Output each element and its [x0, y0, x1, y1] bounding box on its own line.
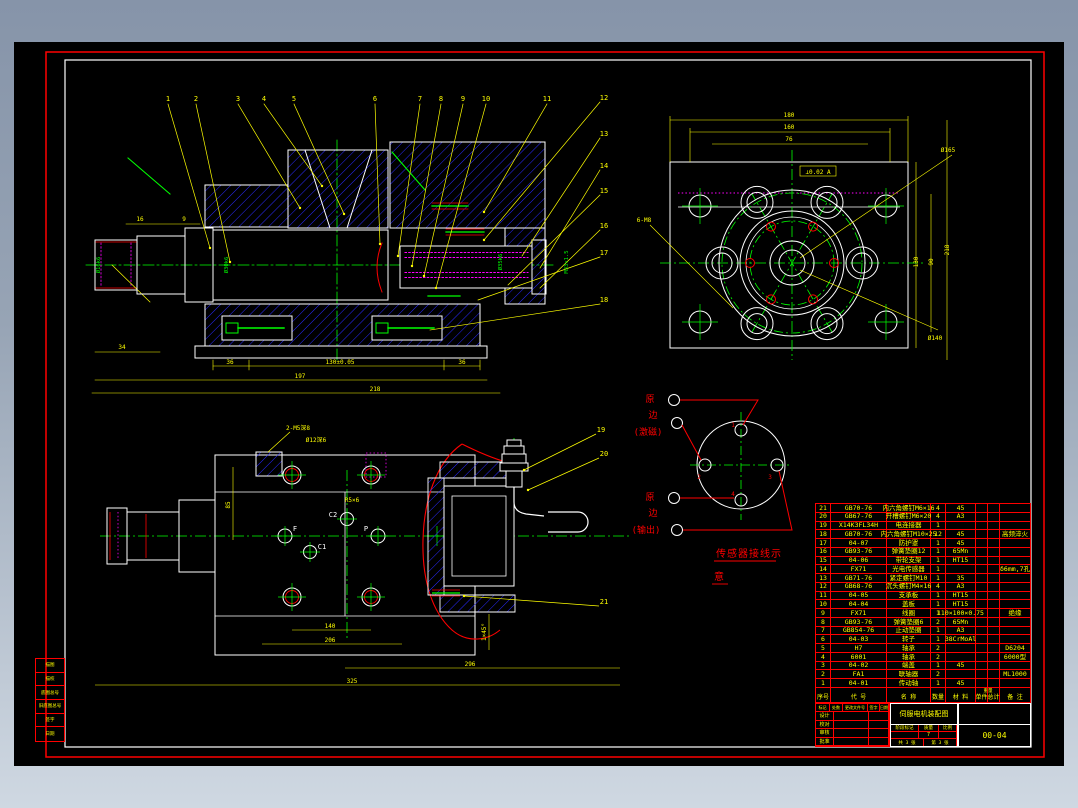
part-callouts-viewC: 19 20 21: [597, 426, 608, 606]
bom-cell: 8: [816, 618, 831, 626]
svg-text:17: 17: [600, 249, 608, 257]
svg-text:边: 边: [648, 508, 657, 519]
mass-label: 质量: [919, 725, 939, 731]
bom-cell: 2: [931, 653, 946, 661]
bom-cell: 内六角螺钉M10×25: [887, 530, 931, 538]
svg-text:Ø30k6: Ø30k6: [223, 257, 230, 274]
bom-cell: 45: [946, 662, 976, 670]
bom-cell: 2: [931, 618, 946, 626]
bom-cell: [988, 662, 1000, 670]
bom-cell: 1: [931, 557, 946, 565]
flange-end-view: 180 160 76 130 90 218 Ø165 Ø140 6-M8 ⊥0.…: [637, 112, 956, 360]
bom-cell: 04-06: [831, 557, 887, 565]
bom-cell: 止动垫圈: [887, 627, 931, 635]
bom-cell: [976, 670, 988, 678]
bom-cell: 14: [816, 565, 831, 573]
bom-cell: 45: [946, 530, 976, 538]
bom-header-cell: 序号: [816, 688, 831, 702]
svg-text:(激磁): (激磁): [634, 426, 663, 438]
bom-cell: [976, 522, 988, 530]
sign-label: 设计: [816, 712, 834, 720]
bom-cell: 1: [931, 539, 946, 547]
svg-text:3: 3: [768, 474, 772, 481]
sheet-number: 第 3 张: [924, 739, 957, 746]
bom-cell: 45: [946, 539, 976, 547]
bom-row: 2FA1联轴器2ML1000: [816, 670, 1030, 679]
bom-cell: 高频淬火: [1000, 530, 1030, 538]
strip-label: 日期: [36, 727, 64, 741]
bom-cell: [976, 653, 988, 661]
svg-text:21: 21: [600, 598, 608, 606]
bom-cell: [988, 627, 1000, 635]
bom-row: 1004-04盖板1HT15: [816, 600, 1030, 609]
bom-cell: 轴承: [887, 644, 931, 652]
svg-text:130±0.05: 130±0.05: [326, 359, 355, 366]
wiring-caption: 传感器接线示 意: [712, 547, 782, 584]
bom-cell: 1: [931, 679, 946, 687]
svg-text:8: 8: [439, 95, 443, 103]
bom-cell: 1: [931, 600, 946, 608]
svg-text:Ø35k6: Ø35k6: [497, 254, 504, 271]
bom-cell: 15: [816, 557, 831, 565]
bom-cell: 2: [931, 644, 946, 652]
bom-header-row: 序号 代 号 名 称 数量 材 料 单件 总计 备 注: [816, 688, 1030, 702]
bom-cell: 线圈: [887, 609, 931, 617]
bom-cell: [988, 557, 1000, 565]
svg-text:6-M8: 6-M8: [637, 217, 652, 224]
plan-view: 19 20 21 F C1 C2 P 2-M5深8: [95, 424, 632, 685]
wiring-terminals: [669, 395, 683, 536]
bom-cell: [976, 557, 988, 565]
strip-label: 描校: [36, 673, 64, 687]
sheet-total: 共 3 张: [891, 739, 924, 746]
strip-label: 底图总号: [36, 686, 64, 700]
bom-cell: [1000, 679, 1030, 687]
bom-cell: [946, 522, 976, 530]
bom-cell: [988, 653, 1000, 661]
bom-cell: 1: [931, 662, 946, 670]
stage-label: 阶段标记: [891, 725, 919, 731]
svg-text:(输出): (输出): [632, 524, 661, 536]
bom-cell: [988, 618, 1000, 626]
front-section-view: 1 2 3 4 5 6 7 8 9 10 11 12 13 14 15 16 1…: [86, 94, 608, 393]
bom-cell: 2: [931, 670, 946, 678]
bom-cell: GB70-76: [831, 504, 887, 512]
strip-label: 描图: [36, 659, 64, 673]
bom-cell: GB70-76: [831, 530, 887, 538]
svg-text:4: 4: [731, 491, 735, 498]
bom-cell: [976, 583, 988, 591]
bom-cell: 开槽螺钉M6×20: [887, 513, 931, 521]
bom-cell: GB93-76: [831, 548, 887, 556]
bom-cell: [988, 600, 1000, 608]
bom-cell: [1000, 574, 1030, 582]
wiring-labels: 原 边 (激磁) 原 边 (输出): [632, 394, 663, 536]
bom-cell: GB67-76: [831, 513, 887, 521]
svg-text:180: 180: [784, 112, 795, 119]
svg-text:10: 10: [482, 95, 490, 103]
bom-cell: FX71: [831, 565, 887, 573]
title-block-right: 00-04: [958, 703, 1031, 747]
bom-cell: [946, 653, 976, 661]
bom-cell: 1: [931, 592, 946, 600]
bom-cell: 1: [816, 679, 831, 687]
bom-row: 9FX71线圈1110×100×0.75绝缘: [816, 609, 1030, 618]
change-label: 更改文件号: [843, 704, 868, 711]
bom-cell: 35: [946, 574, 976, 582]
bom-cell: A3: [946, 583, 976, 591]
bom-cell: A3: [946, 513, 976, 521]
bom-cell: 联轴器: [887, 670, 931, 678]
svg-text:20: 20: [600, 450, 608, 458]
bom-cell: [1000, 618, 1030, 626]
bom-cell: [988, 644, 1000, 652]
svg-text:5: 5: [292, 95, 296, 103]
bom-cell: 轴承: [887, 653, 931, 661]
bom-cell: 6001: [831, 653, 887, 661]
svg-text:9: 9: [461, 95, 465, 103]
bom-cell: 盖板: [887, 600, 931, 608]
svg-text:3: 3: [236, 95, 240, 103]
bom-cell: [1000, 662, 1030, 670]
bom-cell: 4: [931, 504, 946, 512]
bom-cell: 19: [816, 522, 831, 530]
bom-cell: 12: [816, 583, 831, 591]
svg-text:M33×1.5: M33×1.5: [564, 250, 570, 273]
svg-text:Ø16k6: Ø16k6: [95, 257, 102, 274]
sheet-count-row: 共 3 张 第 3 张: [891, 739, 957, 746]
svg-text:15: 15: [600, 187, 608, 195]
bom-cell: 65Mn: [946, 548, 976, 556]
bom-row: 304-02端盖145: [816, 662, 1030, 671]
bom-cell: 04-01: [831, 679, 887, 687]
svg-text:13: 13: [600, 130, 608, 138]
svg-text:76: 76: [785, 136, 793, 143]
bom-cell: [976, 565, 988, 573]
bom-header-cell: 材 料: [946, 688, 976, 702]
bom-cell: [988, 609, 1000, 617]
cad-preview-background: 1 2 3 4 5 6 7 8 9 10 11 12 13 14 15 16 1…: [0, 0, 1078, 808]
bom-cell: [988, 504, 1000, 512]
bom-cell: [976, 592, 988, 600]
bom-cell: [976, 662, 988, 670]
bom-cell: [988, 679, 1000, 687]
bom-cell: [988, 522, 1000, 530]
bom-cell: [976, 600, 988, 608]
svg-text:90: 90: [928, 258, 935, 266]
bom-cell: 16: [816, 548, 831, 556]
svg-text:130: 130: [913, 256, 920, 267]
bom-cell: 电连接器: [887, 522, 931, 530]
bom-cell: GB71-76: [831, 574, 887, 582]
bom-cell: 弹簧垫圈12: [887, 548, 931, 556]
bom-cell: 12: [931, 530, 946, 538]
bom-cell: [1000, 557, 1030, 565]
bom-cell: 1: [931, 548, 946, 556]
bom-cell: 光电传感器: [887, 565, 931, 573]
bom-cell: 17: [816, 539, 831, 547]
bom-cell: [988, 583, 1000, 591]
bom-cell: [976, 679, 988, 687]
svg-text:14: 14: [600, 162, 608, 170]
bom-cell: [976, 618, 988, 626]
bom-cell: GB93-76: [831, 618, 887, 626]
bom-cell: 4: [816, 653, 831, 661]
bom-cell: 传动轴: [887, 679, 931, 687]
svg-text:34: 34: [118, 344, 126, 351]
mass-value: 7: [919, 732, 939, 738]
svg-text:⊥0.02 A: ⊥0.02 A: [805, 169, 831, 176]
bom-cell: 6000型: [1000, 653, 1030, 661]
bom-cell: 7: [816, 627, 831, 635]
svg-text:1: 1: [166, 95, 170, 103]
svg-text:P: P: [364, 525, 368, 533]
bom-cell: [988, 565, 1000, 573]
svg-text:85: 85: [225, 501, 232, 509]
bom-cell: [976, 504, 988, 512]
bom-cell: 端盖: [887, 662, 931, 670]
bom-cell: [946, 644, 976, 652]
title-block-center: 伺服电机装配图 阶段标记 质量 比例 7 共 3 张 第 3 张: [890, 703, 958, 747]
bom-cell: 1: [931, 574, 946, 582]
svg-text:218: 218: [370, 386, 381, 393]
bom-cell: [1000, 504, 1030, 512]
bom-cell: 2: [816, 670, 831, 678]
sign-label: 校对: [816, 721, 834, 729]
svg-text:160: 160: [784, 124, 795, 131]
bom-cell: 21: [816, 504, 831, 512]
svg-text:16: 16: [136, 216, 144, 223]
change-label: 标记: [816, 704, 830, 711]
drawing-title: 伺服电机装配图: [891, 704, 957, 725]
bom-cell: [1000, 539, 1030, 547]
bom-cell: [1000, 627, 1030, 635]
bom-cell: 18: [816, 530, 831, 538]
svg-text:R5×6: R5×6: [345, 497, 360, 504]
parts-list-table: 21GB70-76内六角螺钉M6×1644520GB67-76开槽螺钉M6×20…: [815, 503, 1031, 703]
bom-cell: FA1: [831, 670, 887, 678]
bom-cell: 内六角螺钉M6×16: [887, 504, 931, 512]
strip-label: 签字: [36, 714, 64, 728]
bom-cell: [1000, 592, 1030, 600]
bom-cell: 5: [816, 644, 831, 652]
svg-text:36: 36: [458, 359, 466, 366]
svg-text:2-M5深8: 2-M5深8: [286, 424, 310, 432]
svg-text:C1: C1: [318, 543, 326, 551]
svg-text:1: 1: [731, 422, 735, 429]
bom-cell: 04-07: [831, 539, 887, 547]
bom-cell: [976, 513, 988, 521]
bom-cell: 13: [816, 574, 831, 582]
mass-row: 7: [891, 732, 957, 739]
bom-cell: [976, 644, 988, 652]
bom-cell: GB854-76: [831, 627, 887, 635]
bom-rows: 21GB70-76内六角螺钉M6×1644520GB67-76开槽螺钉M6×20…: [816, 504, 1030, 688]
bom-cell: 110×100×0.75: [946, 609, 976, 617]
bom-cell: [976, 539, 988, 547]
bom-cell: [976, 635, 988, 643]
bom-cell: [1000, 548, 1030, 556]
bom-cell: 45: [946, 504, 976, 512]
bom-cell: [1000, 583, 1030, 591]
bom-cell: [946, 670, 976, 678]
signature-rows: 设计 校对 审核 批准: [816, 712, 889, 746]
bom-header-cell: 数量: [931, 688, 946, 702]
sign-label: 审核: [816, 729, 834, 737]
bom-header-cell: 名 称: [887, 688, 931, 702]
svg-text:边: 边: [648, 410, 657, 421]
bom-cell: 10: [816, 600, 831, 608]
bom-cell: 11: [816, 592, 831, 600]
bom-cell: 1: [931, 627, 946, 635]
bom-cell: [976, 548, 988, 556]
bom-cell: [988, 539, 1000, 547]
svg-text:6: 6: [373, 95, 377, 103]
bom-cell: [976, 574, 988, 582]
svg-text:原: 原: [645, 492, 654, 503]
bom-row: 604-03转子138CrMoAl: [816, 635, 1030, 644]
bom-cell: 04-02: [831, 662, 887, 670]
bom-row: 18GB70-76内六角螺钉M10×251245高频淬火: [816, 530, 1030, 539]
svg-text:意: 意: [714, 570, 725, 583]
svg-text:197: 197: [295, 373, 306, 380]
bom-cell: 04-04: [831, 600, 887, 608]
svg-text:218: 218: [944, 244, 951, 255]
bom-cell: [946, 565, 976, 573]
bom-cell: 带轮支架: [887, 557, 931, 565]
bom-cell: 1: [931, 522, 946, 530]
bom-cell: 04-05: [831, 592, 887, 600]
stage-row: 阶段标记 质量 比例: [891, 725, 957, 732]
bom-cell: 1: [931, 565, 946, 573]
bom-cell: X14K3FL34H: [831, 522, 887, 530]
bom-cell: [976, 627, 988, 635]
change-row: 标记 处数 更改文件号 签字 日期: [816, 704, 889, 712]
sign-label: 批准: [816, 738, 834, 746]
svg-text:原: 原: [645, 394, 654, 405]
bom-cell: [988, 548, 1000, 556]
bom-cell: 防护罩: [887, 539, 931, 547]
bom-header-cell: 备 注: [1000, 688, 1030, 702]
bom-cell: 38CrMoAl: [946, 635, 976, 643]
bom-cell: 6: [816, 635, 831, 643]
svg-text:2: 2: [697, 474, 701, 481]
bom-cell: 04-03: [831, 635, 887, 643]
svg-text:F: F: [293, 525, 297, 533]
port-labels: F C1 C2 P: [293, 511, 368, 551]
svg-text:140: 140: [325, 623, 336, 630]
title-block-revision-area: 标记 处数 更改文件号 签字 日期 设计 校对 审核 批准: [815, 703, 890, 747]
svg-text:7: 7: [418, 95, 422, 103]
bom-header-cell: 单件: [976, 688, 988, 702]
bom-header-cell: 代 号: [831, 688, 887, 702]
bom-cell: ML1000: [1000, 670, 1030, 678]
bom-cell: D6204: [1000, 644, 1030, 652]
company-cell: [959, 704, 1030, 725]
scale-label: 比例: [939, 725, 957, 731]
svg-text:16: 16: [600, 222, 608, 230]
title-block: 标记 处数 更改文件号 签字 日期 设计 校对 审核 批准 伺服电机装配图 阶段…: [815, 703, 1031, 747]
bom-cell: 65Mn: [946, 618, 976, 626]
bom-cell: [1000, 635, 1030, 643]
bom-cell: δ6mm,7孔: [1000, 565, 1030, 573]
bom-cell: 支承板: [887, 592, 931, 600]
bom-cell: 4: [931, 583, 946, 591]
svg-text:12: 12: [600, 94, 608, 102]
bom-cell: 9: [816, 609, 831, 617]
bom-header-cell: 总计: [988, 688, 1000, 702]
bom-cell: [988, 513, 1000, 521]
strip-label: 旧底图总号: [36, 700, 64, 714]
bom-cell: HT15: [946, 600, 976, 608]
svg-text:Ø165: Ø165: [941, 147, 956, 154]
sensor-wiring-diagram: 1 2 3 4 原 边 (激磁) 原 边 (输出) 传感器接线示 意: [632, 394, 792, 584]
bom-cell: 3: [816, 662, 831, 670]
bom-cell: [1000, 522, 1030, 530]
left-margin-strip: 描图 描校 底图总号 旧底图总号 签字 日期: [35, 658, 65, 742]
svg-text:325: 325: [347, 678, 358, 685]
drawing-number: 00-04: [959, 725, 1030, 746]
svg-text:18: 18: [600, 296, 608, 304]
svg-text:2: 2: [194, 95, 198, 103]
svg-text:36: 36: [226, 359, 234, 366]
bom-cell: 紧定螺钉M10: [887, 574, 931, 582]
bom-cell: [1000, 513, 1030, 521]
bom-cell: 20: [816, 513, 831, 521]
bom-row: 5H7轴承2D6204: [816, 644, 1030, 653]
svg-text:4: 4: [262, 95, 266, 103]
bom-row: 104-01传动轴145: [816, 679, 1030, 688]
change-label: 处数: [830, 704, 843, 711]
bom-cell: HT15: [946, 557, 976, 565]
svg-text:Ø140: Ø140: [928, 335, 943, 342]
bom-cell: HT15: [946, 592, 976, 600]
bom-row: 14FX71光电传感器1δ6mm,7孔: [816, 565, 1030, 574]
svg-text:19: 19: [597, 426, 605, 434]
svg-text:传感器接线示: 传感器接线示: [716, 547, 782, 560]
bom-cell: [988, 530, 1000, 538]
bom-cell: H7: [831, 644, 887, 652]
change-label: 日期: [880, 704, 889, 711]
bom-row: 19X14K3FL34H电连接器1: [816, 522, 1030, 531]
svg-text:Ø12深6: Ø12深6: [306, 436, 327, 444]
bom-cell: FX71: [831, 609, 887, 617]
bom-row: 1504-06带轮支架1HT15: [816, 557, 1030, 566]
bom-cell: 1: [931, 635, 946, 643]
bom-cell: [976, 609, 988, 617]
bom-cell: 弹簧垫圈6: [887, 618, 931, 626]
bom-cell: 绝缘: [1000, 609, 1030, 617]
bom-cell: [988, 670, 1000, 678]
change-label: 签字: [868, 704, 880, 711]
bom-cell: [988, 592, 1000, 600]
svg-text:11: 11: [543, 95, 551, 103]
svg-text:206: 206: [325, 637, 336, 644]
svg-text:9: 9: [182, 216, 186, 223]
bom-cell: [976, 530, 988, 538]
bom-cell: [988, 635, 1000, 643]
bom-cell: GB68-76: [831, 583, 887, 591]
bom-cell: 沉头螺钉M4×16: [887, 583, 931, 591]
bom-cell: A3: [946, 627, 976, 635]
bom-cell: [988, 574, 1000, 582]
bom-cell: 45: [946, 679, 976, 687]
svg-text:C2: C2: [329, 511, 337, 519]
bom-cell: [1000, 600, 1030, 608]
svg-text:296: 296: [465, 661, 476, 668]
bom-cell: 4: [931, 513, 946, 521]
bom-cell: 转子: [887, 635, 931, 643]
